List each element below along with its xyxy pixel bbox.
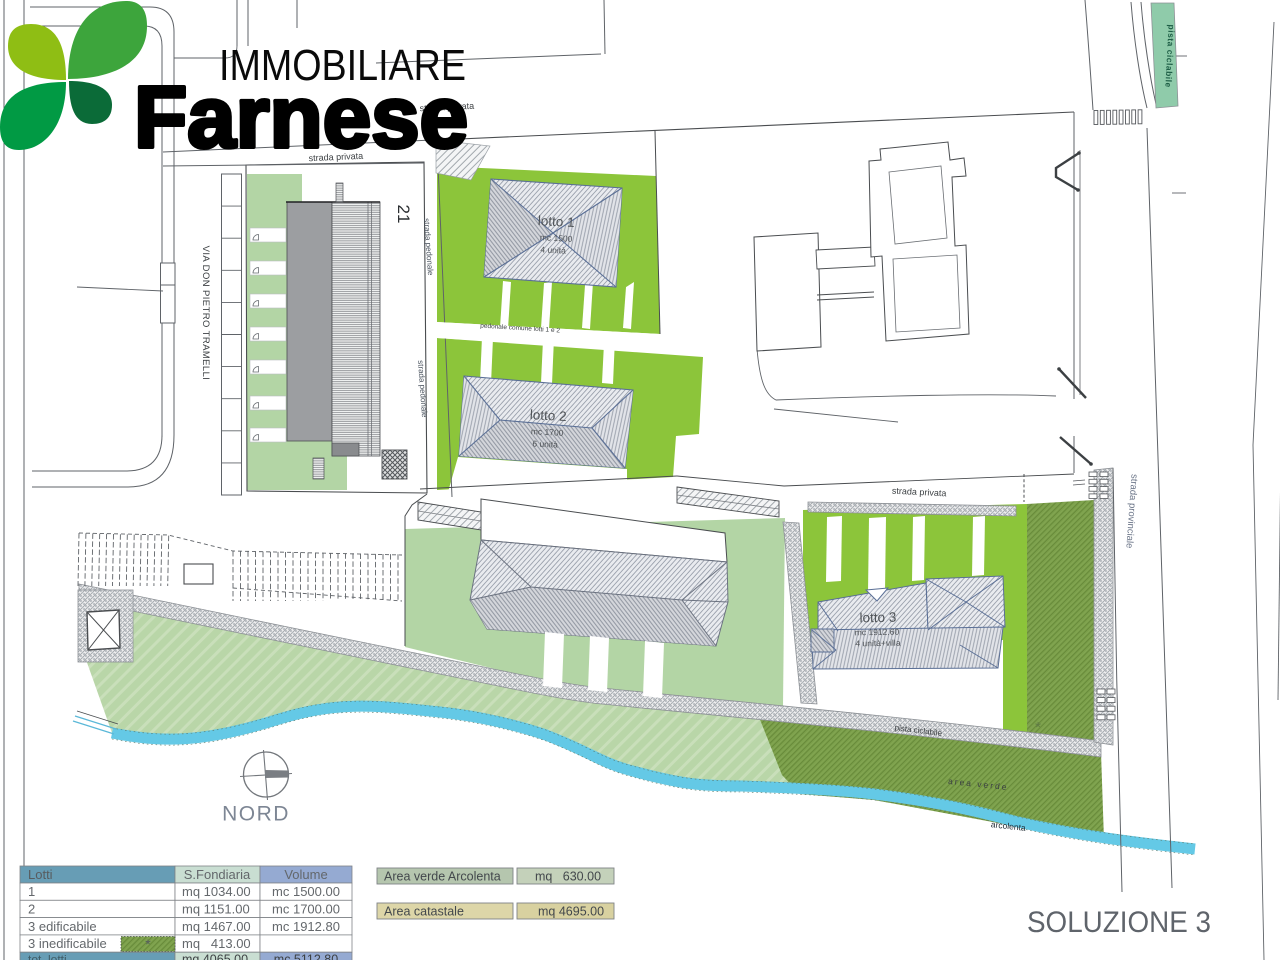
svg-text:*: * xyxy=(1035,719,1041,736)
svg-text:mc 1700: mc 1700 xyxy=(531,426,564,438)
svg-text:lotto 1: lotto 1 xyxy=(537,213,575,230)
svg-text:Farnese: Farnese xyxy=(134,69,468,166)
svg-text:1: 1 xyxy=(28,884,35,899)
svg-text:lotto 2: lotto 2 xyxy=(529,407,567,424)
svg-text:mq 1034.00: mq 1034.00 xyxy=(182,884,251,899)
svg-text:4 unità: 4 unità xyxy=(540,244,566,255)
svg-text:mc 1500: mc 1500 xyxy=(540,232,573,244)
svg-text:3 edificabile: 3 edificabile xyxy=(28,919,97,934)
svg-text:mc 1912.60: mc 1912.60 xyxy=(855,627,900,638)
svg-text:mq 630.00: mq 630.00 xyxy=(535,870,601,884)
svg-text:Area verde Arcolenta: Area verde Arcolenta xyxy=(384,870,501,884)
svg-text:3 inedificabile: 3 inedificabile xyxy=(28,936,107,951)
svg-text:*: * xyxy=(145,936,151,952)
svg-text:tot. lotti: tot. lotti xyxy=(28,953,67,960)
svg-text:VIA DON PIETRO TRAMELLI: VIA DON PIETRO TRAMELLI xyxy=(200,246,211,381)
svg-text:mc 1912.80: mc 1912.80 xyxy=(272,919,340,934)
svg-text:mc 5112.80: mc 5112.80 xyxy=(274,953,338,960)
svg-text:6 unità: 6 unità xyxy=(532,438,558,449)
svg-text:mq 4065.00: mq 4065.00 xyxy=(182,953,248,960)
svg-text:Lotti: Lotti xyxy=(28,867,53,882)
svg-text:S.Fondiaria: S.Fondiaria xyxy=(184,867,251,882)
svg-text:NORD: NORD xyxy=(222,803,290,826)
svg-text:lotto 3: lotto 3 xyxy=(859,610,896,626)
svg-text:21: 21 xyxy=(394,205,413,224)
svg-text:SOLUZIONE 3: SOLUZIONE 3 xyxy=(1027,906,1211,939)
svg-text:mq 4695.00: mq 4695.00 xyxy=(538,905,604,919)
svg-text:mq 1467.00: mq 1467.00 xyxy=(182,919,251,934)
svg-text:4 unità+villa: 4 unità+villa xyxy=(855,638,901,649)
svg-text:mc 1700.00: mc 1700.00 xyxy=(272,902,340,917)
svg-text:Area catastale: Area catastale xyxy=(384,905,464,919)
svg-text:mq 1151.00: mq 1151.00 xyxy=(182,902,250,917)
svg-text:2: 2 xyxy=(28,902,35,917)
svg-text:mc 1500.00: mc 1500.00 xyxy=(272,884,340,899)
svg-text:mq 413.00: mq 413.00 xyxy=(182,936,251,951)
svg-text:Volume: Volume xyxy=(284,867,327,882)
